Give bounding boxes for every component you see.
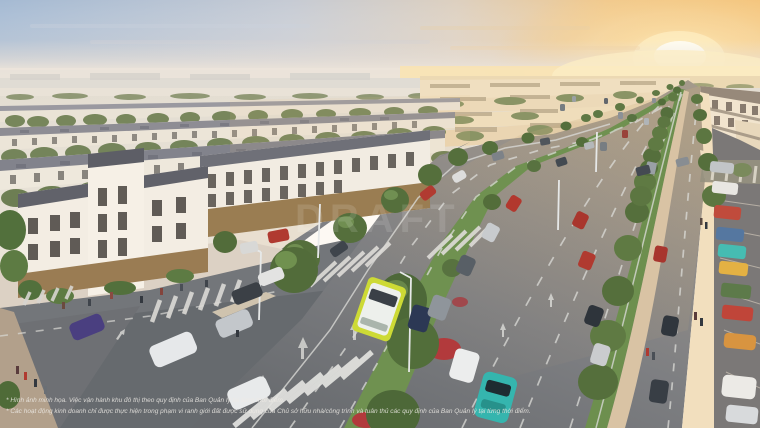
svg-text:DRAFT: DRAFT xyxy=(295,197,461,241)
svg-text:* Các hoạt động kinh doanh chỉ: * Các hoạt động kinh doanh chỉ được thực… xyxy=(6,407,531,415)
svg-text:* Hình ảnh minh họa. Việc vận: * Hình ảnh minh họa. Việc vận hành khu đ… xyxy=(6,396,285,404)
